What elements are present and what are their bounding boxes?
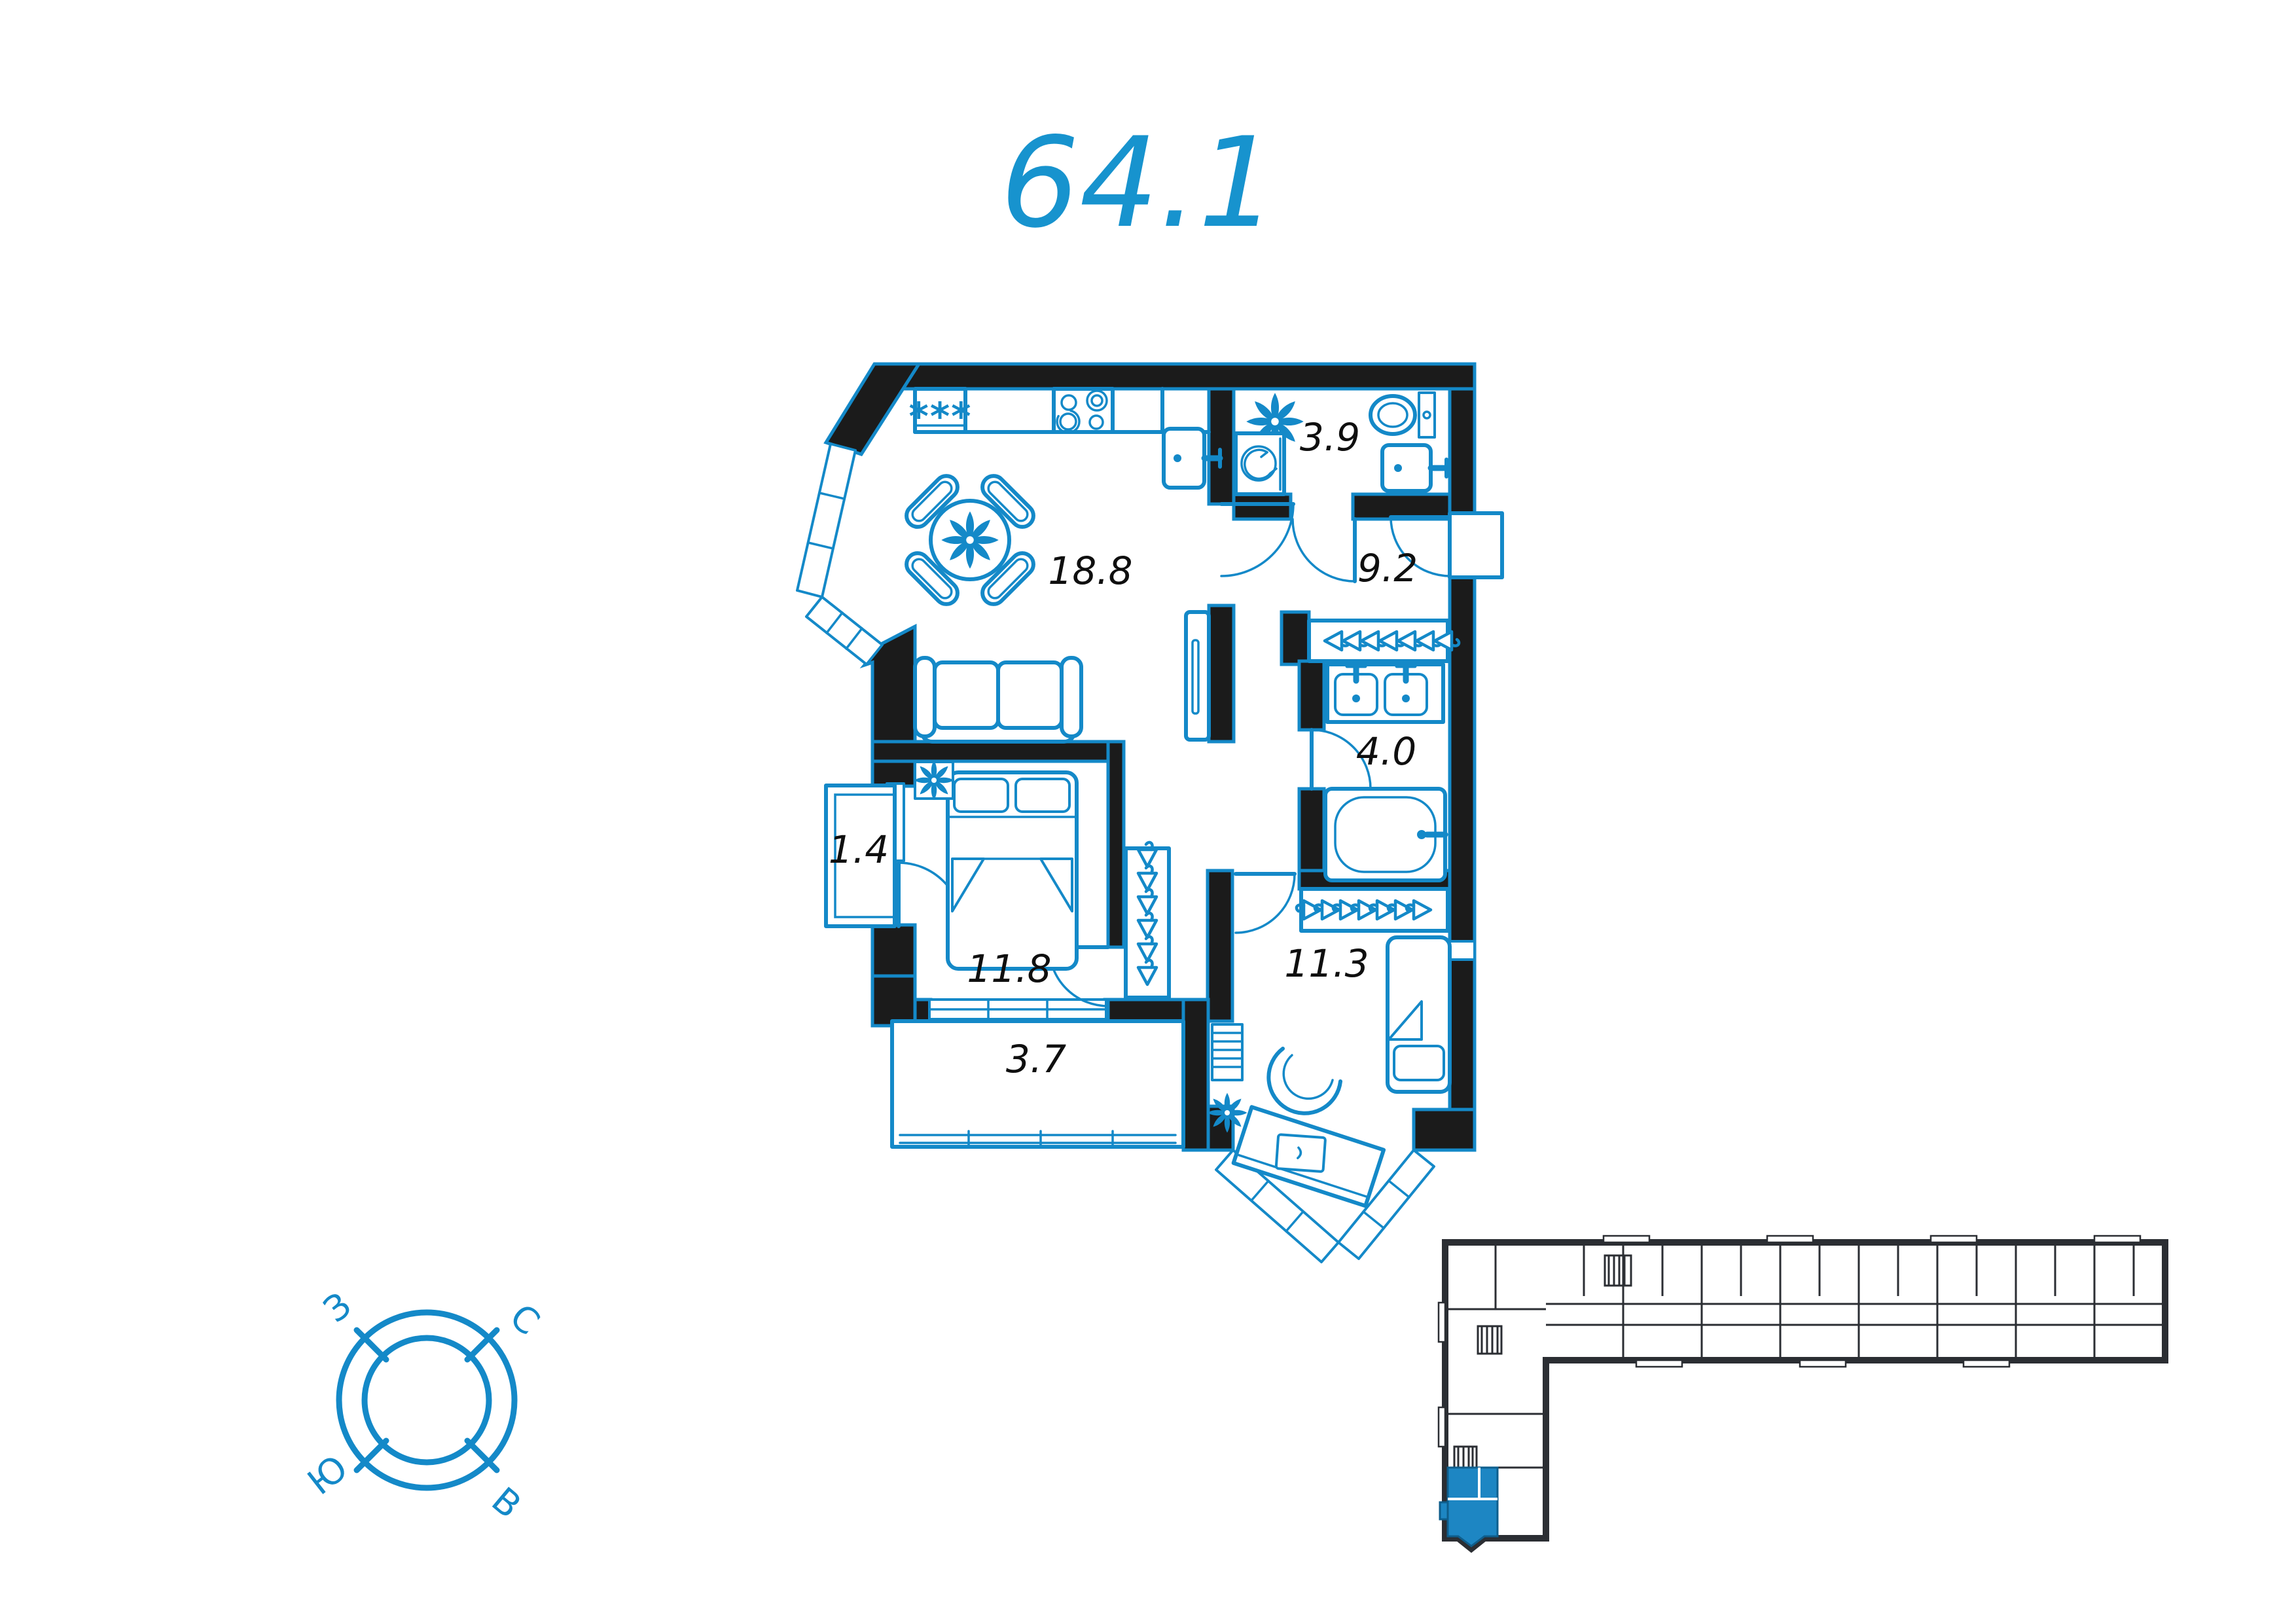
wall-loggia-room2 [1183, 1000, 1208, 1150]
building-outline [1445, 1242, 2165, 1549]
single-bed [1388, 937, 1450, 1092]
wall-top [874, 364, 1475, 389]
compass-rose: З С Ю В [300, 1284, 547, 1526]
room-label-bedroom: 11.8 [967, 947, 1051, 991]
room-label-bathroom-small: 3.9 [1300, 415, 1360, 460]
plant-icon [1208, 1093, 1247, 1133]
room-label-bathroom: 4.0 [1356, 729, 1416, 774]
room-label-kitchen-living: 18.8 [1048, 549, 1132, 593]
bath-small-door-swing [1293, 519, 1355, 581]
fridge-label: *** [909, 394, 973, 439]
tv-cabinet [1186, 612, 1209, 740]
room-label-loggia: 3.7 [1006, 1037, 1066, 1081]
building-key-plan [1439, 1236, 2165, 1549]
hall-closet [1309, 621, 1459, 661]
wall-bedroom-left-bottom [872, 925, 915, 977]
desk-chair [1268, 1049, 1340, 1113]
corridor-wardrobe [1126, 842, 1169, 998]
fridge-icon: *** [909, 389, 973, 439]
page-title: 64.1 [1000, 111, 1277, 255]
compass-label-west: З [316, 1284, 359, 1331]
bedroom-furniture [914, 761, 1077, 969]
washing-machine-icon [1236, 433, 1284, 494]
room-label-balcony: 1.4 [829, 827, 889, 872]
keyplan-highlighted-apartment [1440, 1468, 1498, 1546]
wall-bedroom-right [1108, 742, 1124, 947]
room-label-hallway: 9.2 [1357, 546, 1418, 590]
wall-bath-left-a [1299, 661, 1324, 730]
wall-bath-left-b [1299, 789, 1324, 871]
entry-door [1450, 513, 1502, 577]
compass-label-east: В [484, 1479, 529, 1526]
bathtub-icon [1325, 789, 1445, 880]
wall-room2-left [1208, 871, 1232, 1021]
room2-wardrobe [1297, 889, 1448, 931]
bath-small-sink [1382, 445, 1446, 491]
dining-set [902, 471, 1038, 609]
wall-hall-junction [1282, 612, 1309, 664]
bay-window-left-upper [797, 444, 855, 597]
wall-living-right [1209, 605, 1234, 742]
wall-bay-corner-top [826, 364, 919, 454]
plant-icon [941, 511, 998, 568]
wall-right-top [1450, 389, 1475, 517]
double-vanity-sinks [1327, 664, 1443, 722]
kitchen-counter: *** [909, 389, 1221, 488]
floorplan-canvas: 64.1 [0, 0, 2296, 1624]
room2-door-swing [1236, 874, 1295, 933]
wall-bay-right-chunk [1414, 1110, 1475, 1150]
wall-kitchen-bath [1209, 389, 1234, 504]
room-label-bedroom-second: 11.3 [1284, 941, 1369, 986]
wall-living-bedroom [872, 742, 1108, 761]
room2-wall-niche [1450, 941, 1475, 960]
bay-window-left-lower [806, 597, 882, 664]
plant-icon [914, 761, 954, 801]
wall-loggia-corner [872, 976, 915, 1026]
toilet-icon [1371, 393, 1435, 437]
laptop-icon [1276, 1134, 1325, 1172]
double-bed [948, 772, 1077, 969]
compass-label-north: С [502, 1296, 547, 1344]
compass-label-south: Ю [300, 1447, 355, 1504]
plant-box [914, 761, 954, 801]
bookshelf-icon [1212, 1024, 1242, 1080]
stove-icon [1054, 389, 1113, 433]
wall-bath-small-left [1234, 494, 1291, 519]
wall-right-main [1450, 576, 1475, 1110]
sofa [915, 658, 1081, 742]
